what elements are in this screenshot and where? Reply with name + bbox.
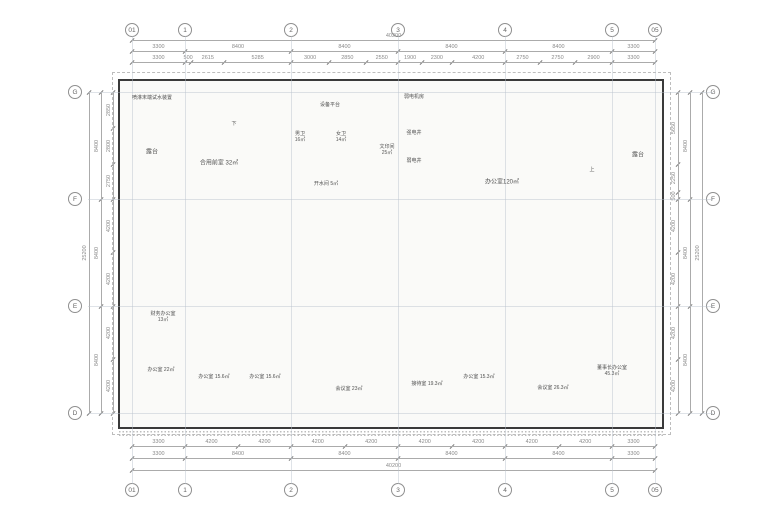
room-label-sprinkler-note: 喷淋末端试水装置 <box>132 95 172 101</box>
grid-bubble: 4 <box>498 23 512 37</box>
dimension-label: 3300 <box>614 451 654 457</box>
dimension-label: 8400 <box>218 44 258 50</box>
dimension-label: 3300 <box>614 439 654 445</box>
grid-bubble: 05 <box>648 483 662 497</box>
grid-line <box>88 306 713 307</box>
dimension-label: 3300 <box>139 44 179 50</box>
dimension-label: 3300 <box>614 44 654 50</box>
grid-line <box>88 92 713 93</box>
grid-bubble: 1 <box>178 23 192 37</box>
grid-bubble: 01 <box>125 23 139 37</box>
dimension-line <box>132 40 655 41</box>
dimension-label: 4200 <box>671 318 677 348</box>
stair-up-label: 上 <box>589 167 594 173</box>
room-label-shared-lobby: 合用前室 32㎡ <box>200 160 238 167</box>
room-label-womens-wc: 女卫14㎡ <box>336 131 347 143</box>
dimension-line <box>132 51 655 52</box>
dimension-label: 8400 <box>94 238 100 268</box>
dimension-label: 2750 <box>538 55 578 61</box>
grid-bubble: 2 <box>284 483 298 497</box>
dimension-label: 3300 <box>139 55 179 61</box>
dimension-label: 8400 <box>325 451 365 457</box>
room-label-office-b: 办公室 15.6㎡ <box>249 374 280 380</box>
grid-bubble: 1 <box>178 483 192 497</box>
dimension-label: 8400 <box>683 238 689 268</box>
dimension-label: 40200 <box>374 33 414 39</box>
dimension-label: 8400 <box>432 451 472 457</box>
room-label-weak-shaft: 弱电井 <box>406 158 421 164</box>
room-label-reception: 接待室 19.3㎡ <box>411 381 442 387</box>
dimension-line <box>702 92 703 413</box>
grid-bubble: E <box>68 299 82 313</box>
dimension-label: 8400 <box>94 345 100 375</box>
dimension-label: 8400 <box>325 44 365 50</box>
dimension-label: 2900 <box>574 55 614 61</box>
dimension-line <box>89 92 90 413</box>
dimension-label: 4200 <box>671 211 677 241</box>
room-label-equipment-platform: 设备平台 <box>320 102 340 108</box>
grid-line <box>132 36 133 484</box>
room-label-office-top: 办公室120㎡ <box>485 179 519 186</box>
grid-line <box>612 36 613 484</box>
grid-bubble: 5 <box>605 23 619 37</box>
grid-bubble: 3 <box>391 483 405 497</box>
room-label-terrace-left: 露台 <box>146 149 158 156</box>
room-label-finance-office: 财务办公室13㎡ <box>150 311 175 323</box>
grid-bubble: F <box>68 192 82 206</box>
dimension-label: 4200 <box>351 439 391 445</box>
dimension-label: 8400 <box>432 44 472 50</box>
dimension-label: 3300 <box>614 55 654 61</box>
room-label-water-room: 开水间 5㎡ <box>314 181 338 187</box>
dimension-label: 25200 <box>695 238 701 268</box>
room-label-office-a: 办公室 15.6㎡ <box>198 374 229 380</box>
dimension-line <box>101 92 102 413</box>
dimension-label: 4200 <box>512 439 552 445</box>
dimension-label: 8400 <box>94 131 100 161</box>
room-label-office-c: 办公室 15.3㎡ <box>463 374 494 380</box>
floor-plan: DDEEFFGG05055544332211010125200840084008… <box>0 0 780 520</box>
dimension-label: 2250 <box>671 163 677 193</box>
grid-bubble: 5 <box>605 483 619 497</box>
room-label-mens-wc: 男卫16㎡ <box>295 131 306 143</box>
room-label-chairman: 董事长办公室45.3㎡ <box>597 365 627 377</box>
dimension-label: 4200 <box>298 439 338 445</box>
dimension-label: 4200 <box>671 371 677 401</box>
room-label-meeting-1: 会议室 23㎡ <box>336 386 363 392</box>
dimension-line <box>690 92 691 413</box>
room-label-office-22: 办公室 22㎡ <box>148 367 175 373</box>
dimension-label: 8400 <box>683 345 689 375</box>
grid-bubble: D <box>68 406 82 420</box>
room-label-strong-shaft: 强电井 <box>406 130 421 136</box>
outer-insulation <box>112 72 671 435</box>
dimension-label: 4200 <box>245 439 285 445</box>
grid-line <box>291 36 292 484</box>
grid-bubble: 05 <box>648 23 662 37</box>
dimension-label: 8400 <box>539 451 579 457</box>
grid-line <box>88 413 713 414</box>
grid-bubble: 01 <box>125 483 139 497</box>
dimension-label: 5650 <box>671 113 677 143</box>
dimension-label: 5285 <box>238 55 278 61</box>
grid-line <box>655 36 656 484</box>
grid-line <box>398 36 399 484</box>
room-label-terrace-right: 露台 <box>632 152 644 159</box>
dimension-label: 4200 <box>565 439 605 445</box>
room-label-elec-room: 弱电机房 <box>404 94 424 100</box>
room-label-meeting-2: 会议室 26.3㎡ <box>537 385 568 391</box>
dimension-label: 8400 <box>539 44 579 50</box>
dimension-label: 4200 <box>458 439 498 445</box>
stair-down-label: 下 <box>231 121 236 127</box>
dimension-label: 2850 <box>327 55 367 61</box>
grid-bubble: G <box>68 85 82 99</box>
grid-line <box>185 36 186 484</box>
dimension-line <box>132 470 655 471</box>
room-label-print-room: 文印间25㎡ <box>379 144 394 156</box>
dimension-label: 3300 <box>139 439 179 445</box>
grid-line <box>88 199 713 200</box>
dimension-label: 8400 <box>683 131 689 161</box>
dimension-line <box>678 92 679 413</box>
dimension-label: 4200 <box>405 439 445 445</box>
dimension-label: 3000 <box>290 55 330 61</box>
dimension-label: 40200 <box>374 463 414 469</box>
dimension-line <box>132 458 655 459</box>
grid-bubble: 2 <box>284 23 298 37</box>
dimension-label: 25200 <box>82 238 88 268</box>
dimension-line <box>132 446 655 447</box>
dimension-label: 4200 <box>192 439 232 445</box>
dimension-line <box>132 62 655 63</box>
grid-line <box>505 36 506 484</box>
dimension-label: 4200 <box>458 55 498 61</box>
dimension-label: 3300 <box>139 451 179 457</box>
dimension-label: 2750 <box>503 55 543 61</box>
dimension-label: 4200 <box>671 264 677 294</box>
dimension-label: 8400 <box>218 451 258 457</box>
grid-bubble: 4 <box>498 483 512 497</box>
